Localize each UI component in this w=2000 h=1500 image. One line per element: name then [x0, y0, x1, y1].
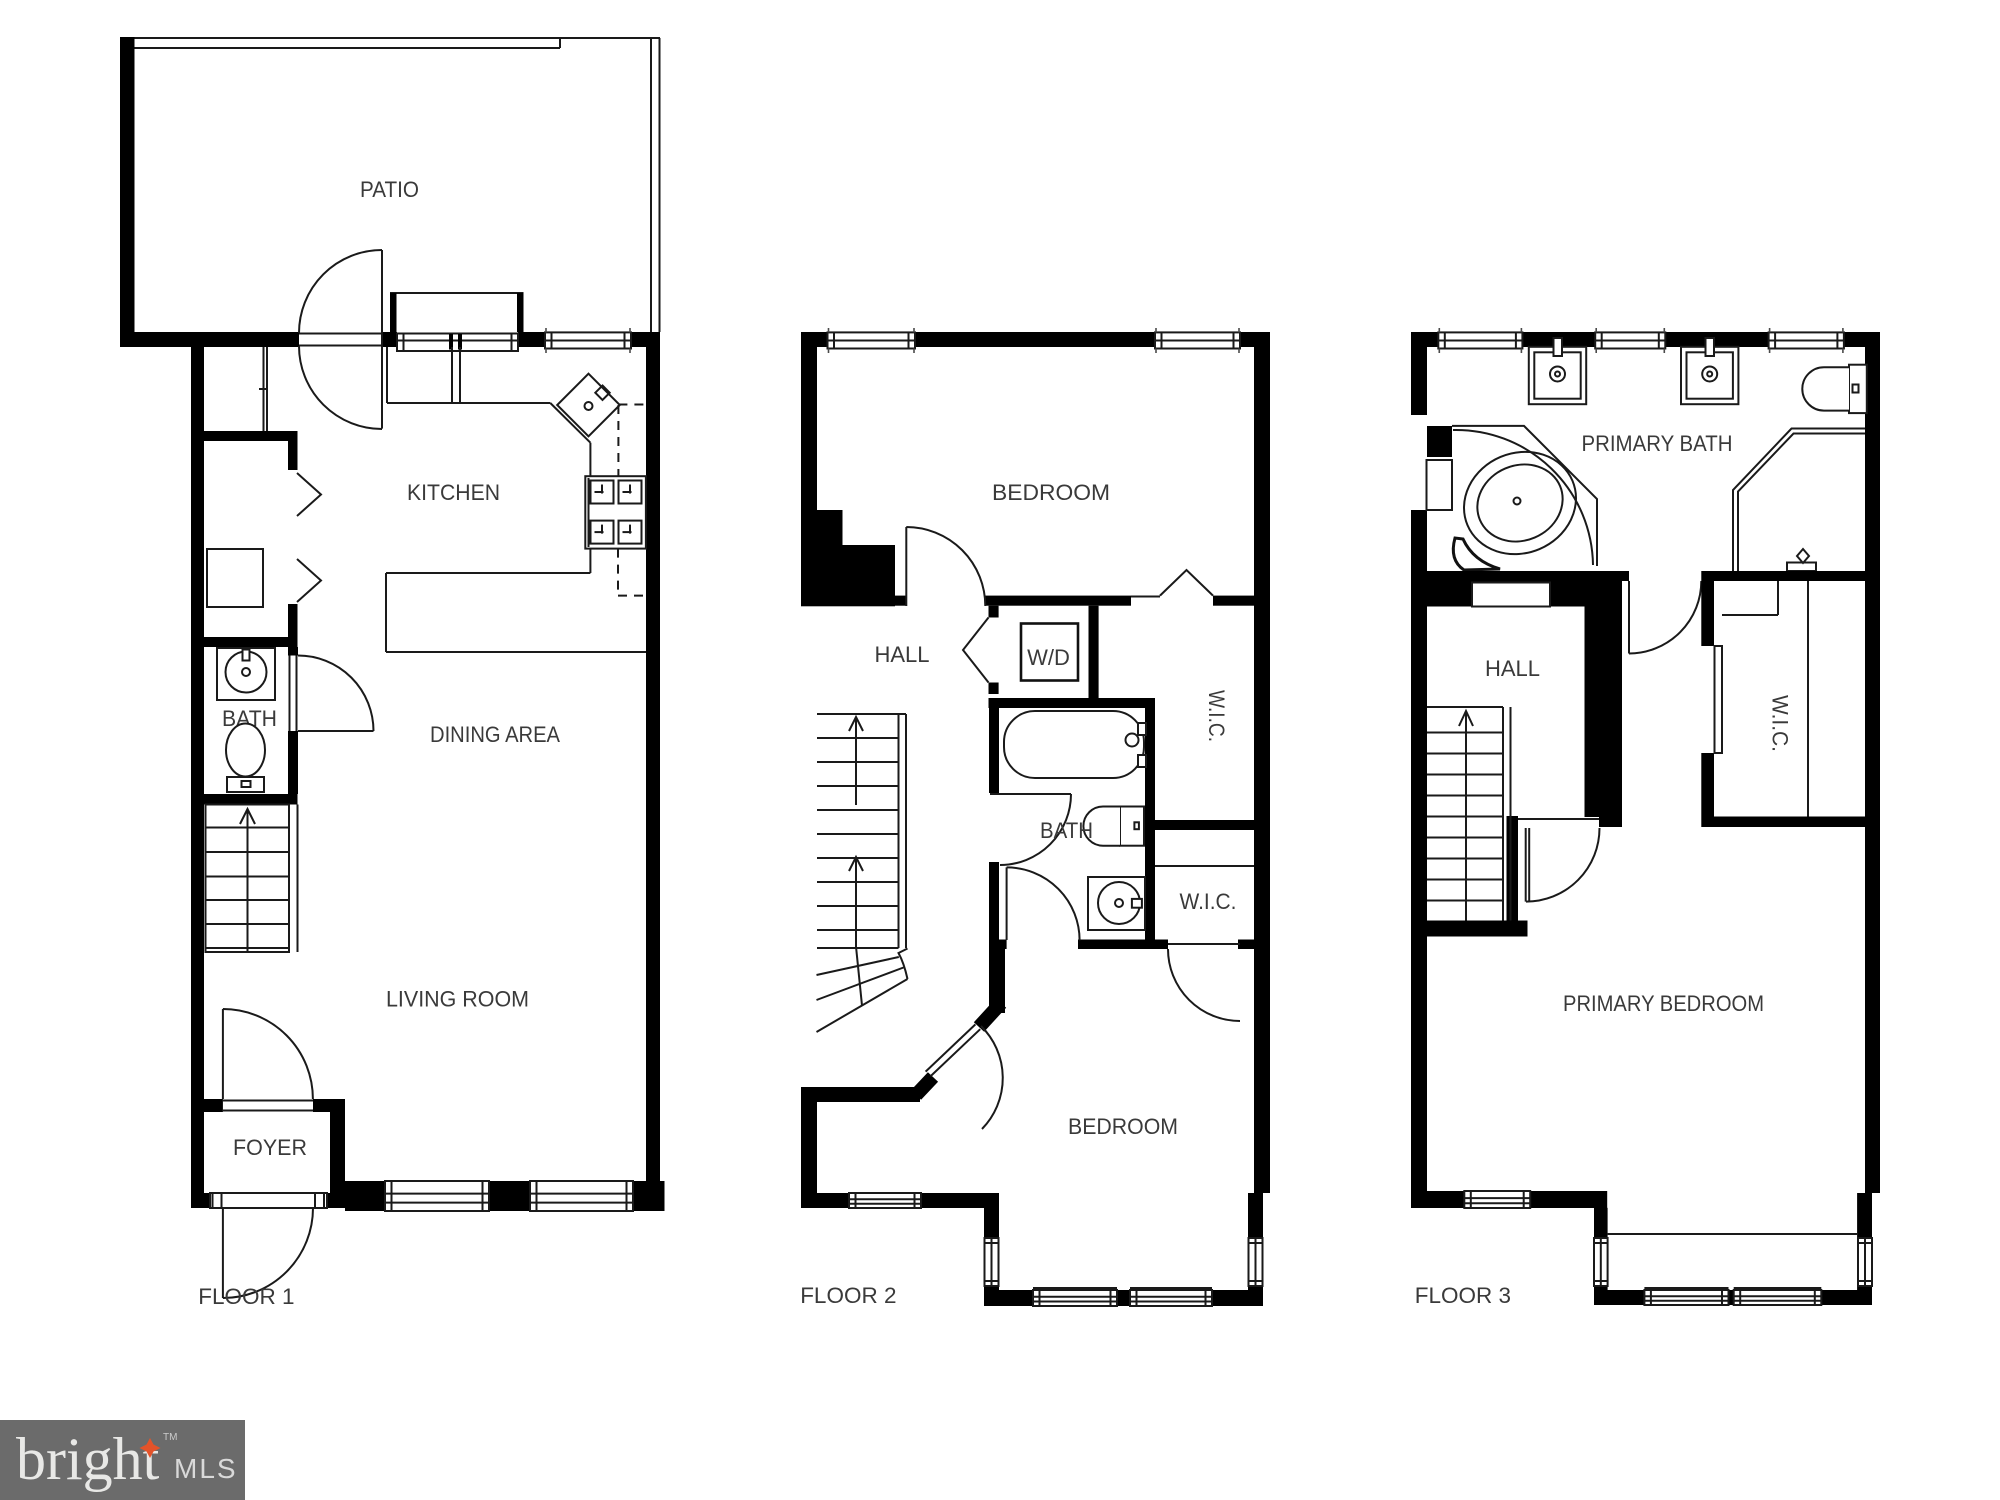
svg-text:MLS: MLS — [174, 1453, 238, 1484]
svg-text:TM: TM — [163, 1432, 177, 1443]
svg-text:bright: bright — [16, 1426, 160, 1492]
